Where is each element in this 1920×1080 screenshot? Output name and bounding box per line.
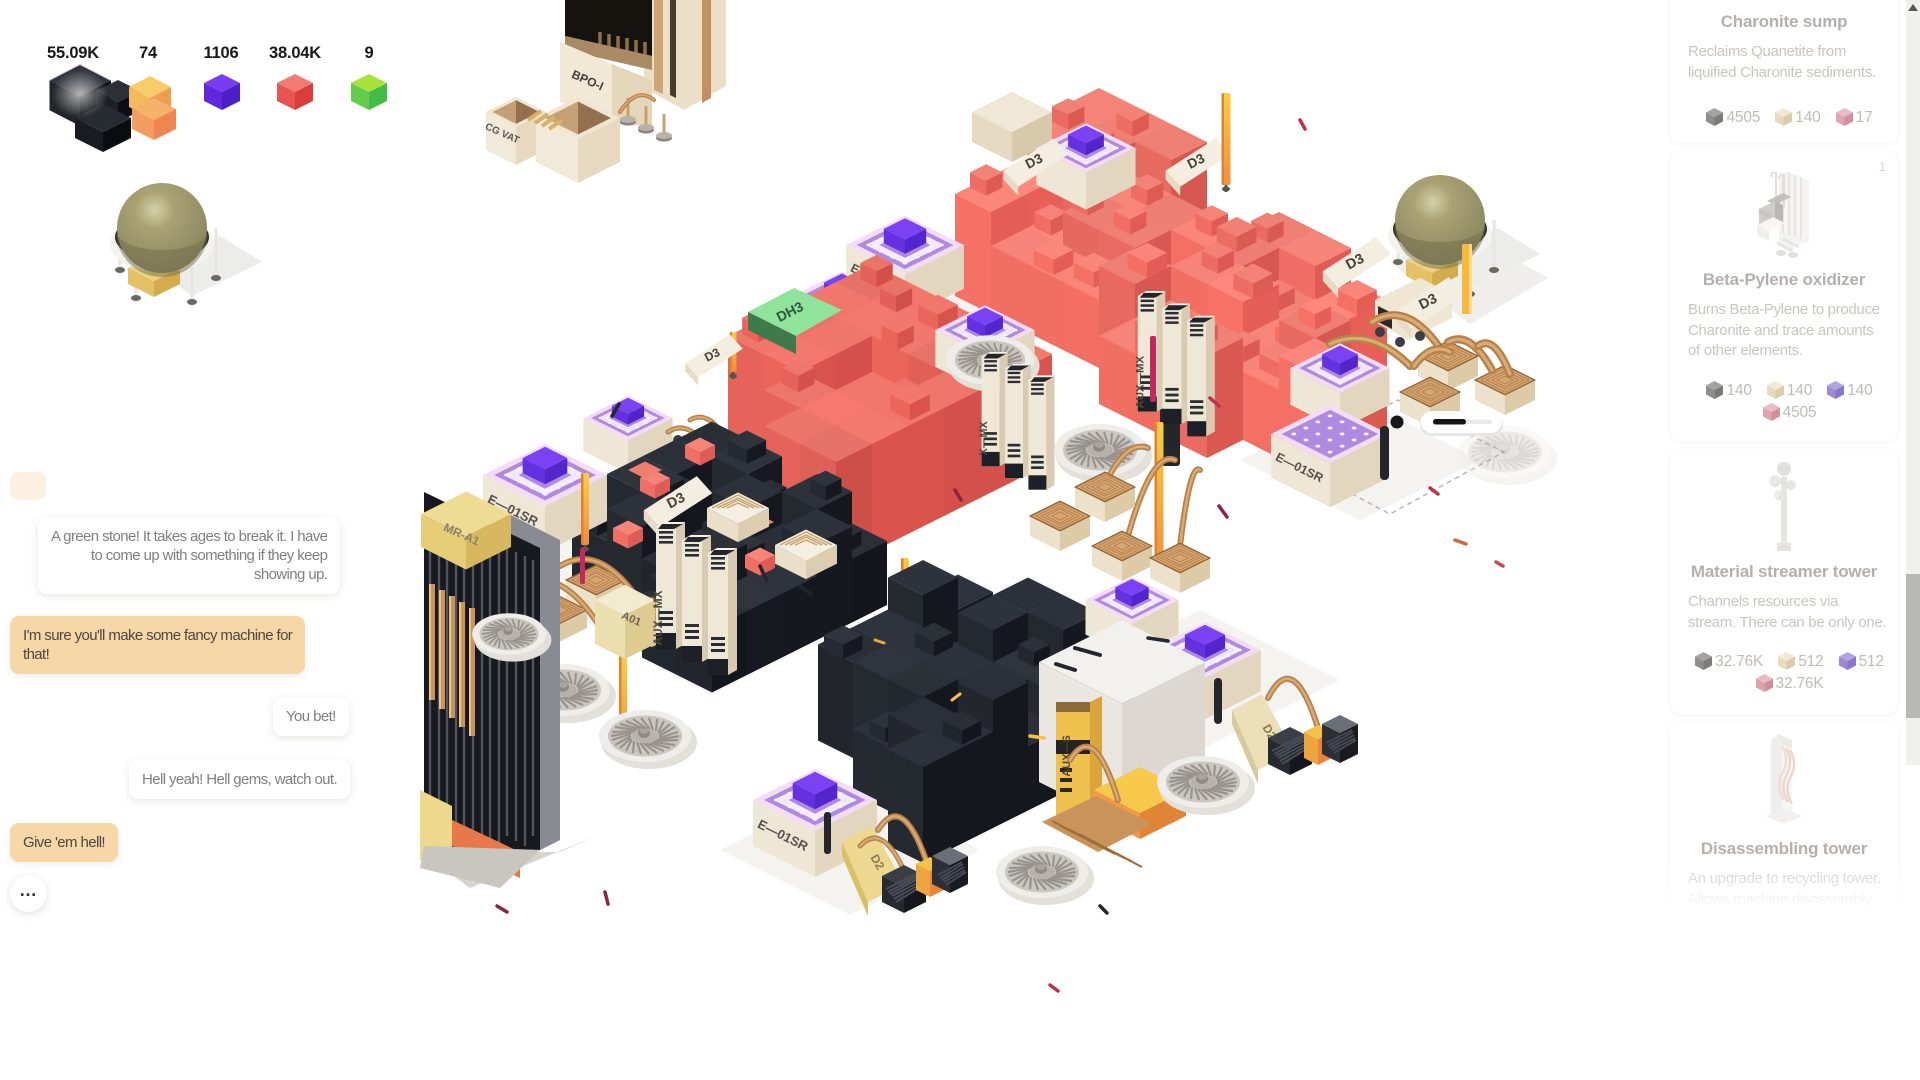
svg-text:AUX—MX: AUX—MX bbox=[1135, 356, 1147, 409]
svg-text:AUX—MX: AUX—MX bbox=[651, 590, 665, 645]
svg-text:X—MX: X—MX bbox=[978, 421, 990, 456]
